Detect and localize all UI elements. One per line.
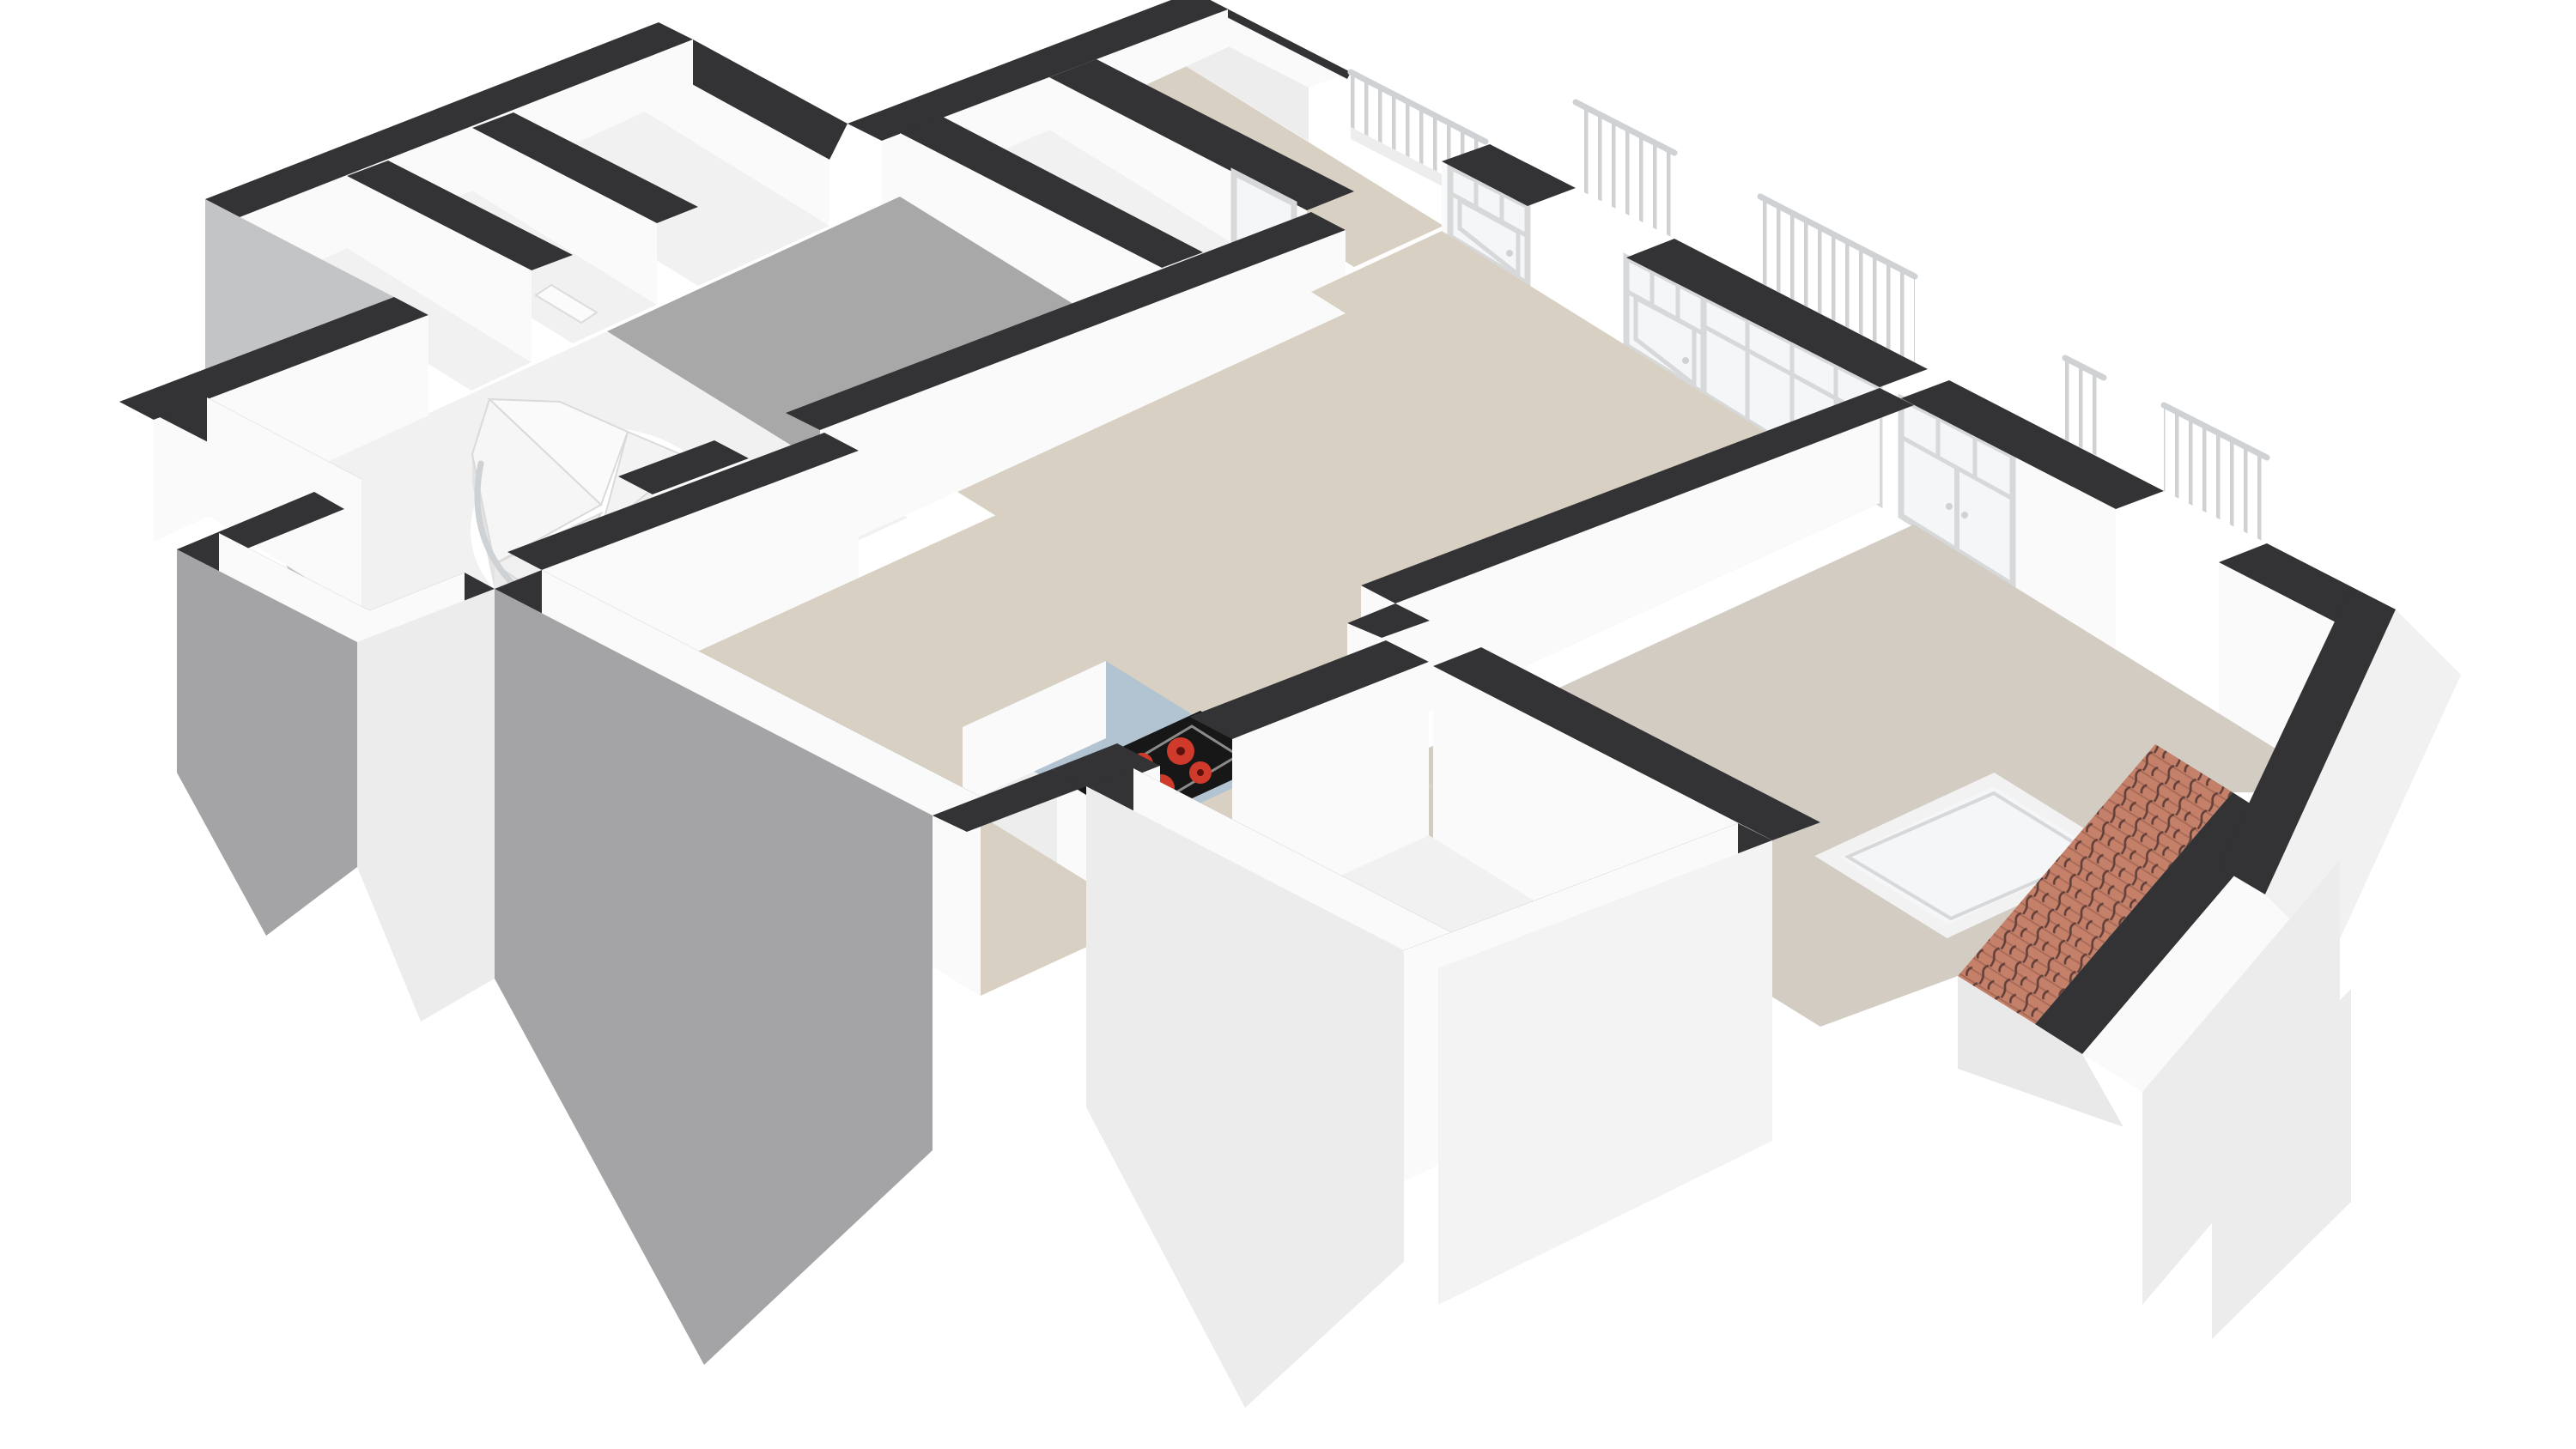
bedroom-door-handle-l: [1946, 503, 1953, 510]
door1-handle: [1506, 250, 1513, 257]
floorplan-svg: [0, 0, 2576, 1449]
burner-core: [1176, 747, 1185, 755]
floorplan-render: [0, 0, 2576, 1449]
burner-core: [1197, 769, 1204, 776]
bedroom-door-handle-r: [1961, 512, 1968, 518]
door2-handle: [1682, 357, 1689, 364]
